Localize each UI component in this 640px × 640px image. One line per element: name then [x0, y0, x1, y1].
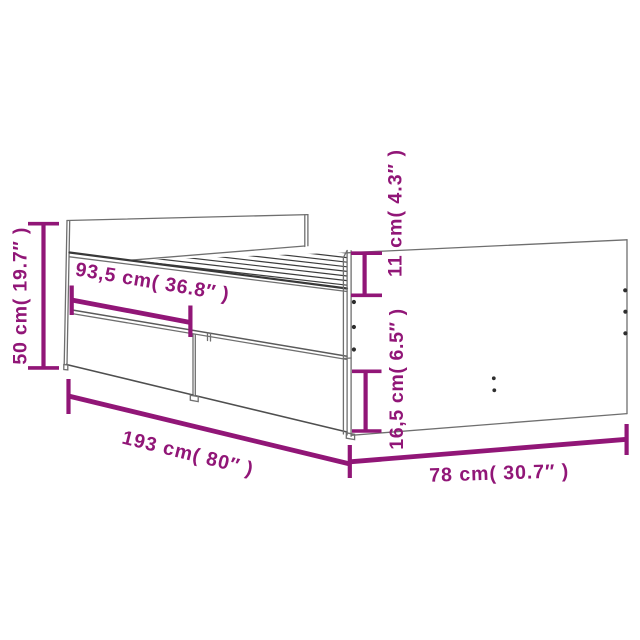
svg-text:11 cm( 4.3″ ): 11 cm( 4.3″ ) — [385, 150, 407, 277]
svg-text:93,5 cm( 36.8″ ): 93,5 cm( 36.8″ ) — [74, 259, 231, 306]
svg-text:50 cm( 19.7″ ): 50 cm( 19.7″ ) — [9, 228, 31, 365]
svg-text:16,5 cm( 6.5″ ): 16,5 cm( 6.5″ ) — [386, 309, 408, 450]
svg-text:78 cm( 30.7″ ): 78 cm( 30.7″ ) — [429, 460, 569, 486]
